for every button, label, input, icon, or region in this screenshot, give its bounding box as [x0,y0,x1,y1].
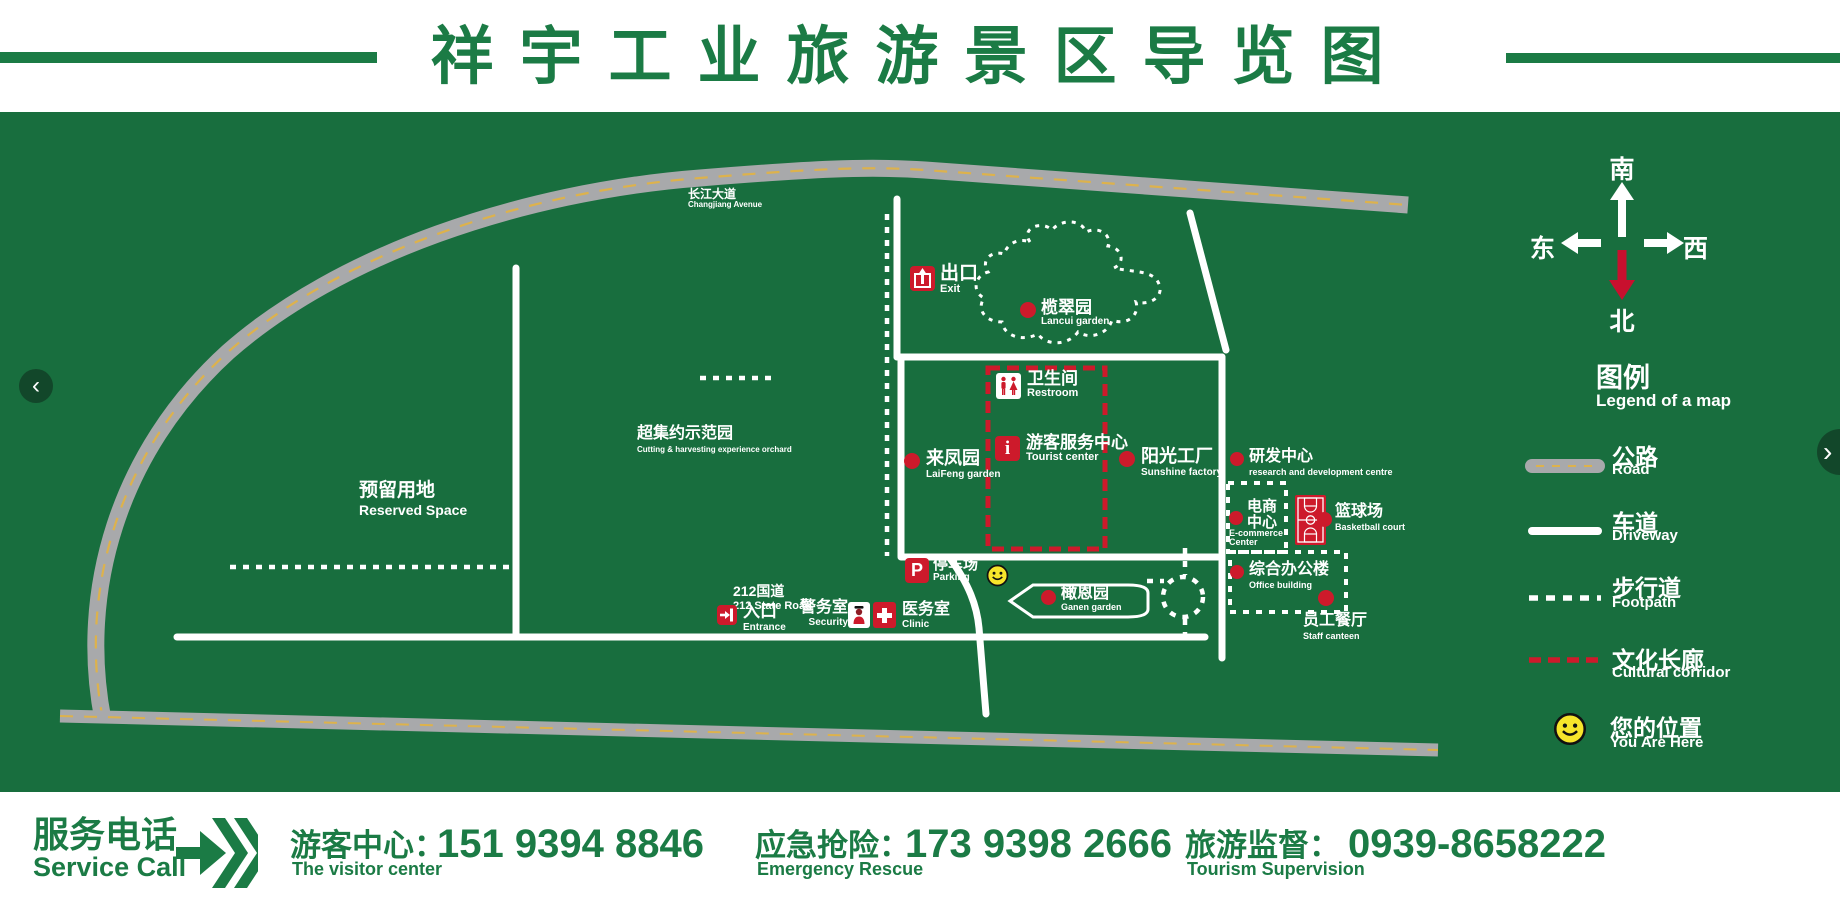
ganen-garden-label: 橄恩园 Ganen garden [1061,586,1122,612]
restroom-sign-icon [996,373,1021,399]
police-officer-icon [851,605,867,625]
restroom-label: 卫生间 Restroom [1027,370,1078,399]
triple-arrow-icon [176,816,258,890]
legend-corridor-label-en: Cultural corridor [1612,664,1730,681]
sunshine-factory-dot [1119,451,1135,467]
security-sign-icon [848,602,870,628]
entrance-sign-icon [717,605,737,625]
security-label: 警务室 Security [800,600,848,628]
clinic-sign-icon [873,602,896,628]
rnd-centre-dot [1230,452,1244,466]
legend-footpath-label-en: Footpath [1612,594,1676,611]
map-field [0,112,1840,792]
ecommerce-center-label: 电商 中心 [1247,499,1277,531]
parking-p-icon: P [911,560,923,581]
service-call-label: 服务电话 [33,806,177,858]
lancui-garden-label: 榄翠园 Lancui garden [1041,299,1109,327]
compass-west-label: 西 [1683,229,1708,265]
tourism-supervision-label-en: Tourism Supervision [1187,859,1365,880]
chevron-left-icon: ‹ [32,372,40,400]
enter-arrow-icon [719,607,735,623]
medical-cross-icon [876,607,893,624]
emergency-rescue-phone: 173 9398 2666 [905,822,1172,867]
basketball-court-label: 篮球场 Basketball court [1335,504,1405,532]
reserved-space-label: 预留用地 Reserved Space [359,481,467,518]
you-are-here-smiley-icon [986,564,1009,587]
exit-sign-icon [910,266,935,291]
tourism-supervision-phone: 0939-8658222 [1348,822,1606,867]
visitor-center-phone: 151 9394 8846 [437,822,704,867]
staff-canteen-dot [1318,590,1334,606]
info-icon: i [1005,438,1010,460]
exit-label: 出口 Exit [940,264,978,295]
rnd-centre-label: 研发中心 research and development centre [1249,449,1393,477]
compass-south-label: 南 [1598,150,1646,186]
laifeng-garden-label: 来凤园 LaiFeng garden [926,449,1000,480]
exit-arrow-icon [910,266,935,291]
entrance-label: 入口 Entrance [743,603,786,633]
laifeng-garden-dot [904,453,920,469]
legend-driveway-label-en: Driveway [1612,527,1678,544]
tourist-center-label: 游客服务中心 Tourist center [1026,434,1128,463]
basketball-court-dot [1317,512,1332,527]
compass-east-label: 东 [1530,229,1555,265]
chevron-right-icon: › [1823,436,1832,468]
carousel-prev-button[interactable]: ‹ [19,369,53,403]
compass-north-label: 北 [1598,302,1646,338]
page-title: 祥宇工业旅游景区导览图 [0,6,1840,97]
clinic-label: 医务室 Clinic [902,602,950,630]
office-building-dot [1230,565,1244,579]
sunshine-factory-label: 阳光工厂 Sunshine factory [1141,447,1222,478]
emergency-rescue-label-en: Emergency Rescue [757,859,923,880]
legend-smiley-icon [1553,712,1587,746]
staff-canteen-label: 员工餐厅 Staff canteen [1303,613,1367,641]
legend-here-label-en: You Are Here [1610,734,1703,751]
office-building-label: 综合办公楼 Office building [1249,562,1329,590]
parking-sign-icon: P [905,558,929,583]
legend-road-label-en: Road [1612,461,1650,478]
lancui-garden-dot [1020,302,1036,318]
ganen-garden-dot [1041,590,1056,605]
wc-figures-icon [998,376,1019,396]
guide-map-board: 祥宇工业旅游景区导览图 [0,0,1840,901]
footer-bar: 服务电话 Service Call 游客中心： The visitor cent… [0,792,1840,901]
changjiang-avenue-label: 长江大道 Changjiang Avenue [688,188,762,209]
visitor-center-label-en: The visitor center [292,859,442,880]
parking-label: 停车场 Parking [933,557,978,583]
ecommerce-center-label-en: E-commerce Center [1229,529,1283,548]
orchard-label: 超集约示范园 Cutting & harvesting experience o… [637,426,792,454]
legend-heading: 图例 [1596,356,1650,395]
legend-heading-en: Legend of a map [1596,391,1731,411]
service-call-label-en: Service Call [33,852,186,883]
ecommerce-center-dot [1229,511,1243,525]
